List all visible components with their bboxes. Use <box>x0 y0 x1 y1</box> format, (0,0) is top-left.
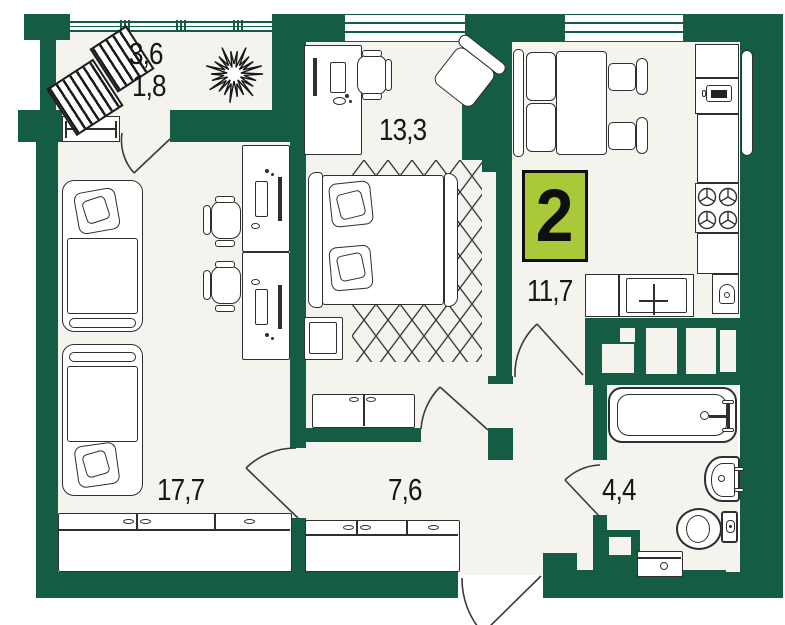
room-label-balcony: 3,6 <box>129 36 163 72</box>
floor-plan: 2 <box>0 0 785 625</box>
entrance-door-arc <box>462 576 541 625</box>
bathroom-vestibule-door-arc <box>515 324 583 377</box>
room-label-balcony-reduced: 1,8 <box>132 68 166 104</box>
door-swings <box>0 0 785 625</box>
room-label-corridor: 7,6 <box>388 472 422 508</box>
room-label-kitchen-hall: 11,7 <box>527 273 572 309</box>
living-room-door-arc <box>246 448 298 518</box>
room-label-bathroom: 4,4 <box>602 472 636 508</box>
room-label-bedroom: 13,3 <box>379 112 426 148</box>
bathroom-door-arc <box>565 465 600 517</box>
balcony-door-arc <box>121 133 170 173</box>
bedroom-door-arc <box>421 387 488 430</box>
room-label-living-room: 17,7 <box>157 472 204 508</box>
